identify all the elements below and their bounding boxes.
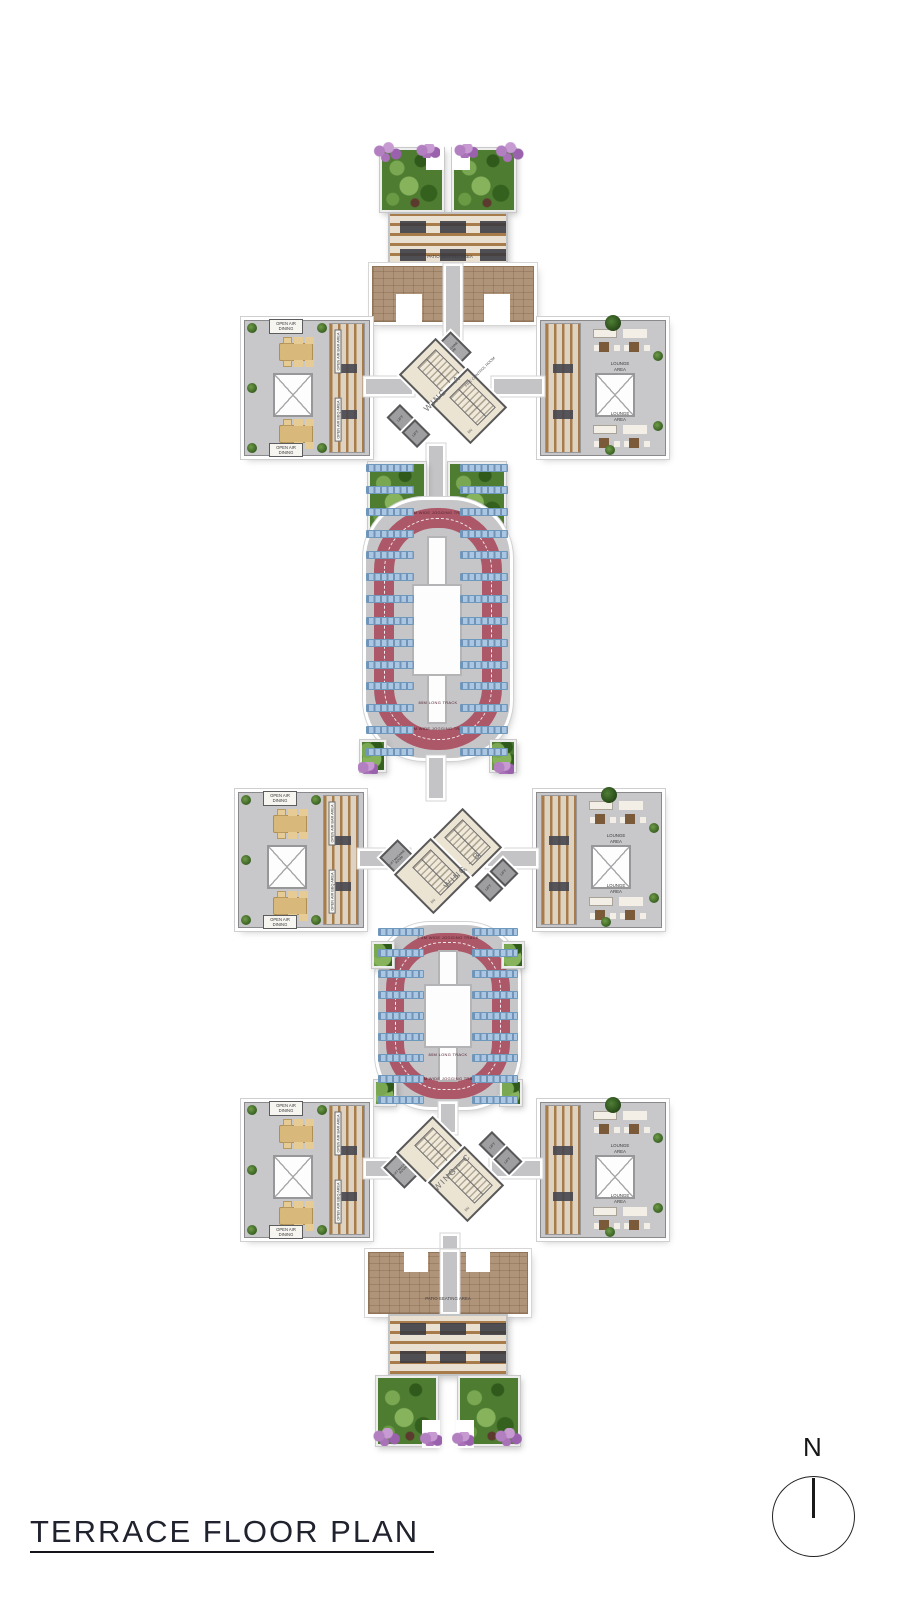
solar-panel: [472, 928, 518, 936]
flower-bed: [420, 1432, 442, 1446]
lounge-area-label: LOUNGE AREA: [605, 1143, 635, 1154]
solar-panel: [472, 949, 518, 957]
terrace-notch: [404, 1250, 428, 1272]
solar-panel: [366, 595, 414, 603]
terrace-notch: [484, 294, 510, 322]
shrub-icon: [311, 795, 321, 805]
skylight-cutout: [273, 373, 313, 417]
shrub-icon: [649, 823, 659, 833]
flower-bed: [358, 762, 378, 774]
wing-b-dining-terrace: OPEN AIR DINING OPEN AIR DINING OPEN AIR…: [238, 792, 364, 928]
lounge-area-label: LOUNGE AREA: [601, 833, 631, 844]
flower-bed: [494, 142, 524, 162]
track-length-label: 80M LONG TRACK: [416, 1052, 480, 1057]
solar-panel: [366, 704, 414, 712]
shrub-icon: [311, 915, 321, 925]
dining-table: [273, 815, 307, 833]
solar-panel: [366, 639, 414, 647]
solar-panel: [378, 1075, 424, 1083]
solar-panel: [460, 486, 508, 494]
wing-b-lounge-terrace: LOUNGE AREA LOUNGE AREA: [536, 792, 662, 928]
solar-panel: [460, 595, 508, 603]
solar-panel: [366, 726, 414, 734]
solar-panel: [460, 748, 508, 756]
shrub-icon: [247, 1165, 257, 1175]
solar-panel: [366, 530, 414, 538]
patio-seating-label: PATIO SEATING AREA: [420, 1296, 476, 1302]
dining-table: [279, 1125, 313, 1143]
shrub-icon: [247, 383, 257, 393]
solar-panel: [366, 464, 414, 472]
open-air-dining-label: OPEN AIR DINING: [269, 319, 303, 334]
shrub-icon: [247, 443, 257, 453]
tree-icon: [605, 1097, 621, 1113]
solar-panel-column: [378, 928, 424, 1104]
solar-panel: [378, 1054, 424, 1062]
solar-panel: [472, 1012, 518, 1020]
solar-panel: [472, 1033, 518, 1041]
solar-panel-column: [472, 928, 518, 1104]
walkway: [446, 266, 460, 342]
central-void: [424, 984, 472, 1048]
shrub-icon: [241, 795, 251, 805]
patio-seating-label: PATIO SEATING AREA: [422, 254, 478, 260]
shrub-icon: [605, 445, 615, 455]
solar-panel: [460, 573, 508, 581]
tree-icon: [601, 787, 617, 803]
wing-c-lounge-terrace: LOUNGE AREA LOUNGE AREA: [540, 1102, 666, 1238]
shrub-icon: [317, 443, 327, 453]
solar-panel: [378, 928, 424, 936]
solar-panel: [366, 748, 414, 756]
lounge-seating: [589, 801, 645, 829]
shrub-icon: [653, 421, 663, 431]
solar-panel: [366, 573, 414, 581]
open-air-dining-label: OPEN AIR DINING: [263, 791, 297, 806]
open-air-bar-label: OPEN AIR BAR AREA: [334, 330, 341, 374]
solar-panel: [460, 661, 508, 669]
dining-table: [279, 425, 313, 443]
wing-c-dining-terrace: OPEN AIR DINING OPEN AIR DINING OPEN AIR…: [244, 1102, 370, 1238]
terrace-floor-plan: PATIO SEATING AREA OPEN AIR DINING OPEN …: [0, 0, 914, 1600]
terrace-notch: [396, 294, 422, 322]
bar-bbq-pergola: OPEN AIR BAR AREA OPEN AIR BBQ AREA: [329, 323, 365, 453]
title-underline: [30, 1551, 434, 1553]
page-title: TERRACE FLOOR PLAN: [30, 1514, 419, 1550]
solar-panel: [378, 1012, 424, 1020]
walkway: [443, 1252, 457, 1312]
flower-bed: [372, 142, 402, 162]
patio-pergola: [388, 1314, 508, 1376]
dining-table: [279, 343, 313, 361]
solar-panel: [378, 991, 424, 999]
lounge-area-label: LOUNGE AREA: [605, 361, 635, 372]
lounge-seating: [589, 897, 645, 925]
shrub-icon: [653, 351, 663, 361]
shrub-icon: [247, 1105, 257, 1115]
open-air-dining-label: OPEN AIR DINING: [269, 1101, 303, 1116]
lounge-area-label: LOUNGE AREA: [605, 411, 635, 422]
flower-bed: [372, 1428, 400, 1446]
compass-needle-icon: [812, 1478, 815, 1518]
lounge-pergola: [545, 1105, 581, 1235]
flower-bed: [452, 1432, 474, 1446]
solar-panel-column: [460, 464, 508, 756]
shrub-icon: [653, 1203, 663, 1213]
lounge-pergola: [541, 795, 577, 925]
lounge-pergola: [545, 323, 581, 453]
patio-pergola: [388, 212, 508, 268]
skylight-cutout: [267, 845, 307, 889]
shrub-icon: [317, 323, 327, 333]
lounge-area-label: LOUNGE AREA: [605, 1193, 635, 1204]
solar-panel: [366, 661, 414, 669]
bar-bbq-pergola: OPEN AIR BAR AREA OPEN AIR BBQ AREA: [323, 795, 359, 925]
open-air-bbq-label: OPEN AIR BBQ AREA: [335, 397, 342, 441]
shrub-icon: [241, 915, 251, 925]
open-air-bbq-label: OPEN AIR BBQ AREA: [329, 869, 336, 913]
bar-bbq-pergola: OPEN AIR BAR AREA OPEN AIR BBQ AREA: [329, 1105, 365, 1235]
open-air-bar-label: OPEN AIR BAR AREA: [328, 802, 335, 846]
solar-panel: [460, 704, 508, 712]
flower-bed: [494, 1428, 522, 1446]
solar-panel: [366, 508, 414, 516]
central-void: [412, 584, 462, 676]
lounge-area-label: LOUNGE AREA: [601, 883, 631, 894]
flower-bed: [416, 144, 440, 158]
solar-panel: [366, 617, 414, 625]
solar-panel: [472, 1054, 518, 1062]
solar-panel: [472, 1096, 518, 1104]
wing-a-dining-terrace: OPEN AIR DINING OPEN AIR DINING OPEN AIR…: [244, 320, 370, 456]
shrub-icon: [649, 893, 659, 903]
tree-icon: [605, 315, 621, 331]
solar-panel: [460, 551, 508, 559]
open-air-dining-label: OPEN AIR DINING: [269, 443, 303, 458]
dining-table: [273, 897, 307, 915]
solar-panel: [472, 970, 518, 978]
solar-panel: [378, 1096, 424, 1104]
solar-panel: [472, 991, 518, 999]
solar-panel: [366, 486, 414, 494]
solar-panel: [378, 949, 424, 957]
shrub-icon: [241, 855, 251, 865]
solar-panel: [460, 726, 508, 734]
open-air-dining-label: OPEN AIR DINING: [269, 1225, 303, 1240]
skylight-cutout: [273, 1155, 313, 1199]
lounge-seating: [593, 1207, 649, 1235]
lounge-seating: [593, 425, 649, 453]
solar-panel: [378, 970, 424, 978]
walkway: [494, 379, 542, 394]
solar-panel: [366, 551, 414, 559]
walkway: [429, 758, 443, 798]
open-air-dining-label: OPEN AIR DINING: [263, 915, 297, 930]
flower-bed: [454, 144, 478, 158]
shrub-icon: [247, 323, 257, 333]
north-label: N: [803, 1432, 822, 1463]
dining-table: [279, 1207, 313, 1225]
solar-panel: [460, 464, 508, 472]
flower-bed: [494, 762, 514, 774]
shrub-icon: [247, 1225, 257, 1235]
lounge-seating: [593, 1111, 649, 1139]
solar-panel: [460, 639, 508, 647]
solar-panel: [460, 682, 508, 690]
shrub-icon: [317, 1225, 327, 1235]
wing-a-lounge-terrace: LOUNGE AREA LOUNGE AREA: [540, 320, 666, 456]
open-air-bar-label: OPEN AIR BAR AREA: [334, 1112, 341, 1156]
shrub-icon: [317, 1105, 327, 1115]
solar-panel: [460, 530, 508, 538]
walkway: [429, 446, 443, 506]
terrace-notch: [466, 1250, 490, 1272]
solar-panel: [472, 1075, 518, 1083]
solar-panel: [366, 682, 414, 690]
solar-panel: [378, 1033, 424, 1041]
solar-panel-column: [366, 464, 414, 756]
open-air-bbq-label: OPEN AIR BBQ AREA: [335, 1179, 342, 1223]
shrub-icon: [653, 1133, 663, 1143]
solar-panel: [460, 508, 508, 516]
shrub-icon: [605, 1227, 615, 1237]
lounge-seating: [593, 329, 649, 357]
solar-panel: [460, 617, 508, 625]
shrub-icon: [601, 917, 611, 927]
